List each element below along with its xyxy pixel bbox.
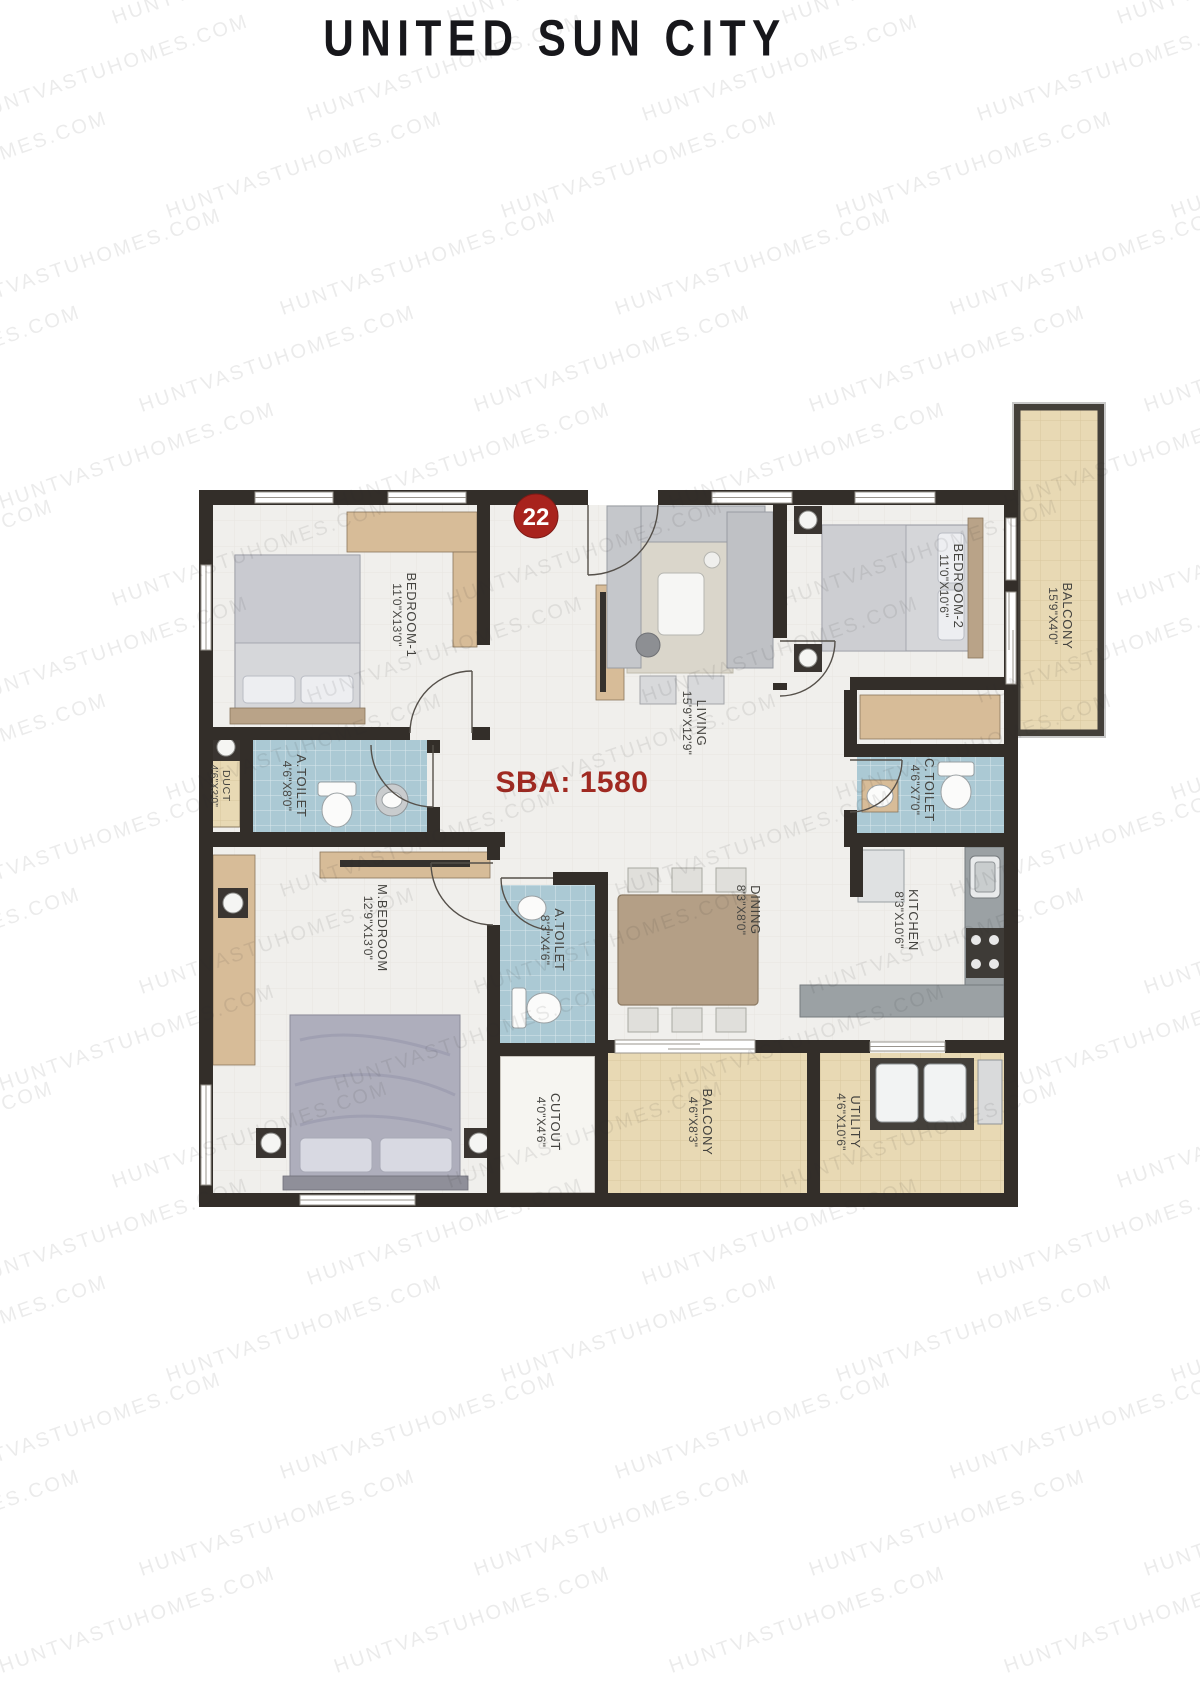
svg-text:UTILITY: UTILITY — [848, 1095, 863, 1148]
label-bedroom2: BEDROOM-2 11'0"X10'6" — [937, 543, 966, 628]
label-mbedroom: M.BEDROOM 12'9"X13'0" — [361, 884, 390, 972]
label-bedroom1: BEDROOM-1 11'0"X13'0" — [390, 572, 419, 657]
label-dining: DINING 8'3"X8'0" — [734, 885, 763, 936]
svg-text:C.TOILET: C.TOILET — [922, 758, 937, 822]
washing-machine — [978, 1060, 1002, 1124]
svg-text:DUCT: DUCT — [220, 770, 232, 802]
window — [1006, 518, 1016, 580]
window — [201, 565, 211, 650]
unit-number-badge: 22 — [514, 494, 558, 538]
svg-text:4'6"X8'0": 4'6"X8'0" — [280, 761, 294, 812]
svg-text:A.TOILET: A.TOILET — [552, 908, 567, 971]
coffee-table — [658, 573, 704, 635]
svg-text:BEDROOM-1: BEDROOM-1 — [404, 572, 419, 657]
label-c-toilet: C.TOILET 4'6"X7'0" — [908, 758, 937, 822]
balcony-slider — [1006, 592, 1016, 684]
window — [201, 1085, 211, 1185]
svg-text:4'6"X10'6": 4'6"X10'6" — [834, 1093, 848, 1150]
window — [712, 492, 792, 503]
svg-text:DINING: DINING — [748, 885, 763, 935]
living-decor — [704, 552, 720, 568]
mbedroom-wardrobe — [213, 855, 255, 1065]
svg-text:15'9"X12'9": 15'9"X12'9" — [680, 691, 694, 755]
label-living: LIVING 15'9"X12'9" — [680, 691, 709, 755]
kitchen-window — [870, 1042, 945, 1051]
svg-text:4'6"X8'3": 4'6"X8'3" — [686, 1097, 700, 1148]
window — [388, 492, 466, 503]
svg-text:11'0"X13'0": 11'0"X13'0" — [390, 583, 404, 647]
svg-text:11'0"X10'6": 11'0"X10'6" — [937, 554, 951, 618]
svg-text:8'3"X10'6": 8'3"X10'6" — [892, 891, 906, 948]
label-kitchen: KITCHEN 8'3"X10'6" — [892, 889, 921, 951]
mbedroom-bed — [283, 1015, 468, 1190]
label-a-toilet2: A.TOILET 8'3"X4'6" — [538, 908, 567, 971]
svg-text:LIVING: LIVING — [694, 700, 709, 747]
sba-text: SBA: 1580 — [496, 766, 649, 799]
tv-panel — [600, 592, 606, 692]
balcony-right-floor — [1017, 407, 1101, 733]
bedroom2-side-table-bottom — [794, 644, 822, 672]
svg-text:4'0"X4'6": 4'0"X4'6" — [534, 1097, 548, 1148]
floor-plan: BEDROOM-1 11'0"X13'0" LIVING 15'9"X12'9"… — [0, 0, 1200, 1702]
svg-text:15'9"X4'0": 15'9"X4'0" — [1046, 587, 1060, 644]
dining-balcony-slider — [615, 1040, 755, 1053]
svg-text:A.TOILET: A.TOILET — [294, 754, 309, 817]
window — [255, 492, 333, 503]
mbedroom-side-table-left — [256, 1128, 286, 1158]
svg-text:CUTOUT: CUTOUT — [548, 1093, 563, 1151]
mbedroom-lamp — [218, 888, 248, 918]
entry-opening — [588, 490, 658, 505]
floor-plan-svg: BEDROOM-1 11'0"X13'0" LIVING 15'9"X12'9"… — [0, 0, 1200, 1697]
svg-text:12'9"X13'0": 12'9"X13'0" — [361, 896, 375, 960]
svg-text:BALCONY: BALCONY — [1060, 582, 1075, 649]
svg-text:8'3"X4'6": 8'3"X4'6" — [538, 915, 552, 966]
label-balcony-right: BALCONY 15'9"X4'0" — [1046, 582, 1075, 649]
bedroom1-bed — [230, 555, 365, 724]
bedroom2-wardrobe — [860, 695, 1000, 739]
label-utility: UTILITY 4'6"X10'6" — [834, 1093, 863, 1150]
svg-text:8'3"X8'0": 8'3"X8'0" — [734, 885, 748, 936]
svg-text:BEDROOM-2: BEDROOM-2 — [951, 543, 966, 628]
label-cutout: CUTOUT 4'0"X4'6" — [534, 1093, 563, 1151]
svg-text:4'6"X2'0": 4'6"X2'0" — [208, 765, 219, 808]
living-stool — [636, 633, 660, 657]
svg-text:BALCONY: BALCONY — [700, 1088, 715, 1155]
bedroom2-side-table-top — [794, 506, 822, 534]
utility-fixtures — [870, 1058, 1002, 1130]
bedroom1-wardrobe-side — [453, 552, 477, 647]
window — [855, 492, 935, 503]
bedroom1-wardrobe — [347, 512, 477, 552]
label-balcony-bottom: BALCONY 4'6"X8'3" — [686, 1088, 715, 1155]
svg-text:4'6"X7'0": 4'6"X7'0" — [908, 765, 922, 816]
stove — [966, 928, 1004, 978]
window — [300, 1195, 415, 1205]
svg-text:KITCHEN: KITCHEN — [906, 889, 921, 951]
label-a-toilet1: A.TOILET 4'6"X8'0" — [280, 754, 309, 817]
unit-number-text: 22 — [523, 504, 550, 531]
svg-text:M.BEDROOM: M.BEDROOM — [375, 884, 390, 972]
